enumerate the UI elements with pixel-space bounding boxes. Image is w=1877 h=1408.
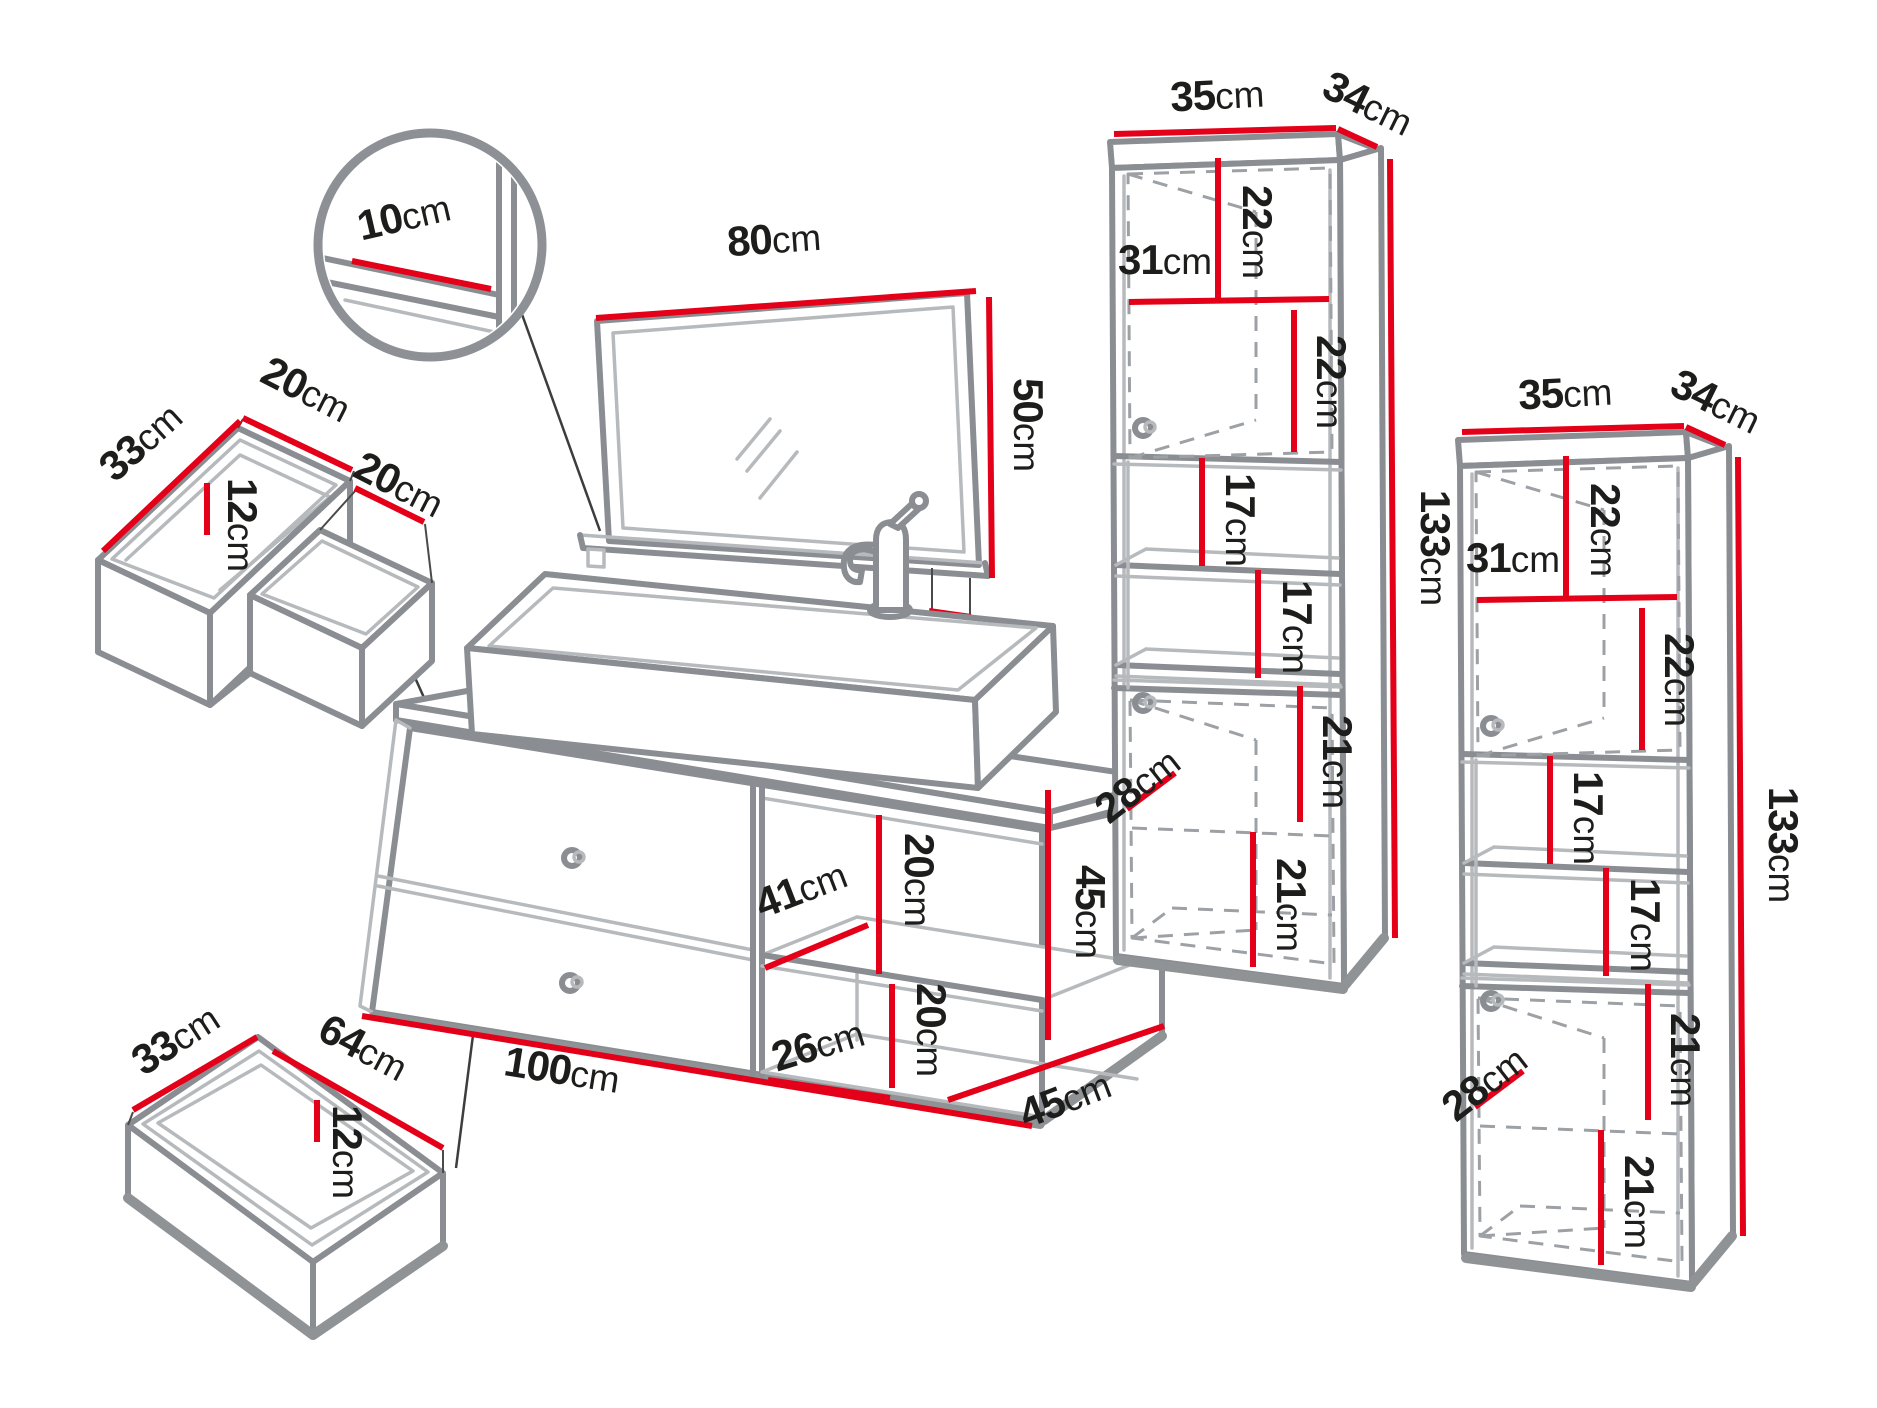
bottom-drawer: 33cm 64cm 12cm xyxy=(123,994,443,1335)
dim-label-31: 31cm xyxy=(1118,236,1212,283)
detail-circle-callout: 10cm xyxy=(318,130,542,357)
dim-label-20: 20cm xyxy=(347,442,452,527)
dim-label-12: 12cm xyxy=(219,478,266,572)
dim-label-21: 21cm xyxy=(1616,1155,1663,1249)
faucet-column xyxy=(876,522,906,610)
dim-label-17: 17cm xyxy=(1217,473,1264,567)
dim-label-33: 33cm xyxy=(90,392,191,490)
dim-label-133: 133cm xyxy=(1412,490,1459,606)
dim-line-31 xyxy=(1129,299,1329,302)
dim-label-35: 35cm xyxy=(1517,367,1613,419)
dim-label-20: 20cm xyxy=(254,347,359,432)
dim-line-50 xyxy=(989,297,992,578)
dim-label-21: 21cm xyxy=(1314,715,1361,809)
u-shaped-drawer: 33cm 20cm 12cm 20cm xyxy=(90,347,453,726)
pointer-line xyxy=(519,306,600,531)
dim-label-22: 22cm xyxy=(1308,335,1355,429)
dim-label-12: 12cm xyxy=(324,1105,371,1199)
dim-label-133: 133cm xyxy=(1760,787,1807,903)
dim-label-35: 35cm xyxy=(1169,69,1265,121)
cabinet-side-panel xyxy=(1340,148,1385,986)
dim-label-17: 17cm xyxy=(1622,878,1669,972)
dim-label-22: 22cm xyxy=(1582,483,1629,577)
dim-label-45-height: 45cm xyxy=(1067,865,1114,959)
dim-label-22: 22cm xyxy=(1234,185,1281,279)
furniture-dimension-diagram: 10cm 33cm 20cm 12cm 20cm 33cm 6 xyxy=(0,0,1877,1408)
dim-label-20: 20cm xyxy=(896,833,943,927)
dim-label-21: 21cm xyxy=(1268,858,1315,952)
dim-label-21: 21cm xyxy=(1662,1013,1709,1107)
shelf-bracket xyxy=(588,549,604,567)
washbasin-vanity: 20cm 41cm 20cm 26cm 45cm 45cm 100cm xyxy=(360,494,1170,1137)
dim-label-80: 80cm xyxy=(725,212,822,265)
dim-line-133 xyxy=(1390,159,1395,938)
dim-label-17: 17cm xyxy=(1565,771,1612,865)
faucet-lever-knob xyxy=(912,494,926,508)
dim-label-22: 22cm xyxy=(1656,633,1703,727)
dim-label-20: 20cm xyxy=(908,983,955,1077)
dim-label-31: 31cm xyxy=(1466,534,1560,581)
dim-label-17: 17cm xyxy=(1274,580,1321,674)
callout-circle xyxy=(318,133,542,357)
mirror-frame xyxy=(597,293,979,565)
dim-label-50: 50cm xyxy=(1005,378,1052,472)
faucet-spout xyxy=(844,544,876,582)
